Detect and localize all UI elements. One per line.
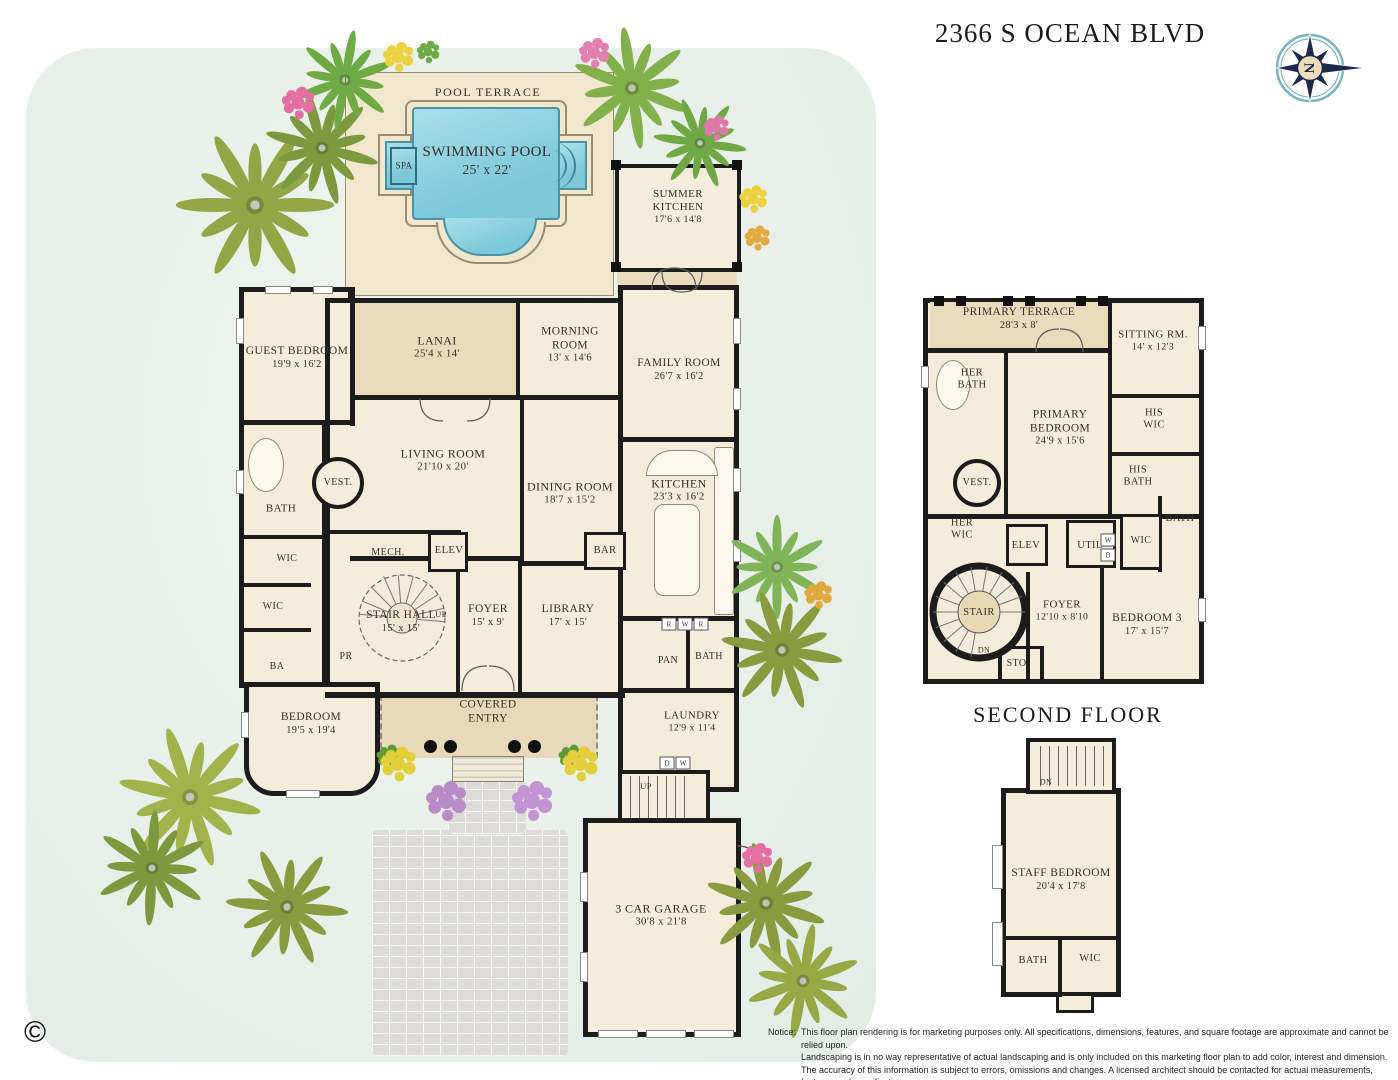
wall: [239, 420, 355, 425]
entry-column: [508, 740, 521, 753]
window: [1198, 326, 1206, 350]
appliance-box: R: [662, 618, 677, 631]
column-post: [1025, 296, 1035, 306]
swimming-pool-water: [412, 107, 560, 220]
wall: [998, 646, 1044, 649]
wall: [456, 561, 460, 694]
appliance-box: W: [678, 618, 693, 631]
lanai-area: [352, 303, 518, 397]
window: [1198, 598, 1206, 622]
notice-block: Notice: This floor plan rendering is for…: [768, 1026, 1398, 1080]
column-post: [611, 160, 621, 170]
window: [241, 712, 249, 738]
window: [236, 318, 244, 344]
window: [733, 318, 741, 344]
bathtub: [248, 438, 284, 492]
window: [733, 468, 741, 492]
page-title: 2366 S OCEAN BLVD: [930, 18, 1210, 49]
notice-line: The accuracy of this information is subj…: [801, 1064, 1398, 1080]
garage-door: [646, 1030, 686, 1038]
primary-terrace-area: [930, 302, 1112, 350]
wall: [1040, 646, 1044, 684]
floor-plan-canvas: POOL TERRACESWIMMING POOL25' x 22'SPASUM…: [0, 0, 1398, 1080]
wall: [998, 646, 1002, 684]
column-post: [1076, 296, 1086, 306]
column-post: [1003, 296, 1013, 306]
entry-walkway: [448, 779, 526, 834]
compass-rose-icon: N: [1258, 18, 1368, 118]
notice-line: This floor plan rendering is for marketi…: [801, 1026, 1398, 1051]
window: [921, 366, 929, 388]
vestibule-round-room: [312, 457, 364, 509]
window: [265, 286, 291, 294]
wall: [928, 348, 1110, 353]
appliance-box: R: [694, 618, 709, 631]
garage: [583, 818, 741, 1037]
wall: [243, 628, 311, 632]
bay-window: [992, 922, 1003, 966]
wall: [520, 398, 524, 561]
compass-north-letter: N: [1301, 63, 1317, 74]
wall: [1108, 452, 1204, 456]
wall: [518, 561, 522, 694]
window: [313, 286, 333, 294]
notice-lines: This floor plan rendering is for marketi…: [801, 1026, 1398, 1080]
wall: [686, 620, 690, 690]
appliance-box: W: [1101, 534, 1116, 547]
appliance-box: D: [660, 757, 675, 770]
notice-line: Landscaping is in no way representative …: [801, 1051, 1398, 1064]
stair-treads: [630, 776, 692, 818]
window: [286, 790, 320, 798]
entry-column: [444, 740, 457, 753]
column-post: [956, 296, 966, 306]
column-post: [732, 160, 742, 170]
bay-window: [992, 845, 1003, 889]
wall: [350, 287, 355, 426]
wall: [1100, 568, 1104, 684]
wall: [350, 395, 622, 400]
garage-door: [598, 1030, 638, 1038]
entry-column: [528, 740, 541, 753]
column-post: [611, 262, 621, 272]
elevator-shaft: [428, 532, 468, 572]
window: [580, 872, 588, 902]
column-post: [1098, 296, 1108, 306]
window: [733, 388, 741, 410]
appliance-box: D: [1101, 549, 1116, 562]
wall: [1004, 348, 1008, 516]
second-floor-caption: SECOND FLOOR: [928, 702, 1208, 728]
wall: [620, 688, 738, 693]
wall: [325, 692, 625, 698]
column-post: [934, 296, 944, 306]
vestibule-round-room: [953, 459, 1001, 507]
bar-nook: [584, 532, 626, 570]
wall: [1108, 394, 1204, 398]
wall: [928, 514, 1204, 519]
entry-column: [424, 740, 437, 753]
wic-closet: [1120, 514, 1162, 570]
summer-kitchen-structure: [615, 164, 741, 272]
wall: [1108, 398, 1112, 516]
wall: [1058, 936, 1062, 997]
window: [580, 952, 588, 982]
entry-steps: [452, 756, 524, 782]
elevator-shaft: [1006, 524, 1048, 566]
wall: [1026, 572, 1030, 682]
stair-treads: [1040, 746, 1104, 786]
spa: [390, 147, 417, 185]
bathtub: [936, 360, 970, 410]
wall: [243, 583, 311, 587]
appliance-box: W: [676, 757, 691, 770]
window: [236, 470, 244, 494]
wall: [243, 535, 323, 539]
garage-door: [694, 1030, 734, 1038]
column-post: [732, 262, 742, 272]
kitchen-island: [654, 504, 700, 596]
driveway: [372, 830, 568, 1056]
notice-label: Notice:: [768, 1026, 796, 1080]
wall: [516, 301, 520, 397]
wall: [620, 437, 738, 442]
copyright-symbol: ©: [24, 1016, 46, 1050]
bedroom-wing: [244, 682, 380, 796]
window: [733, 540, 741, 562]
